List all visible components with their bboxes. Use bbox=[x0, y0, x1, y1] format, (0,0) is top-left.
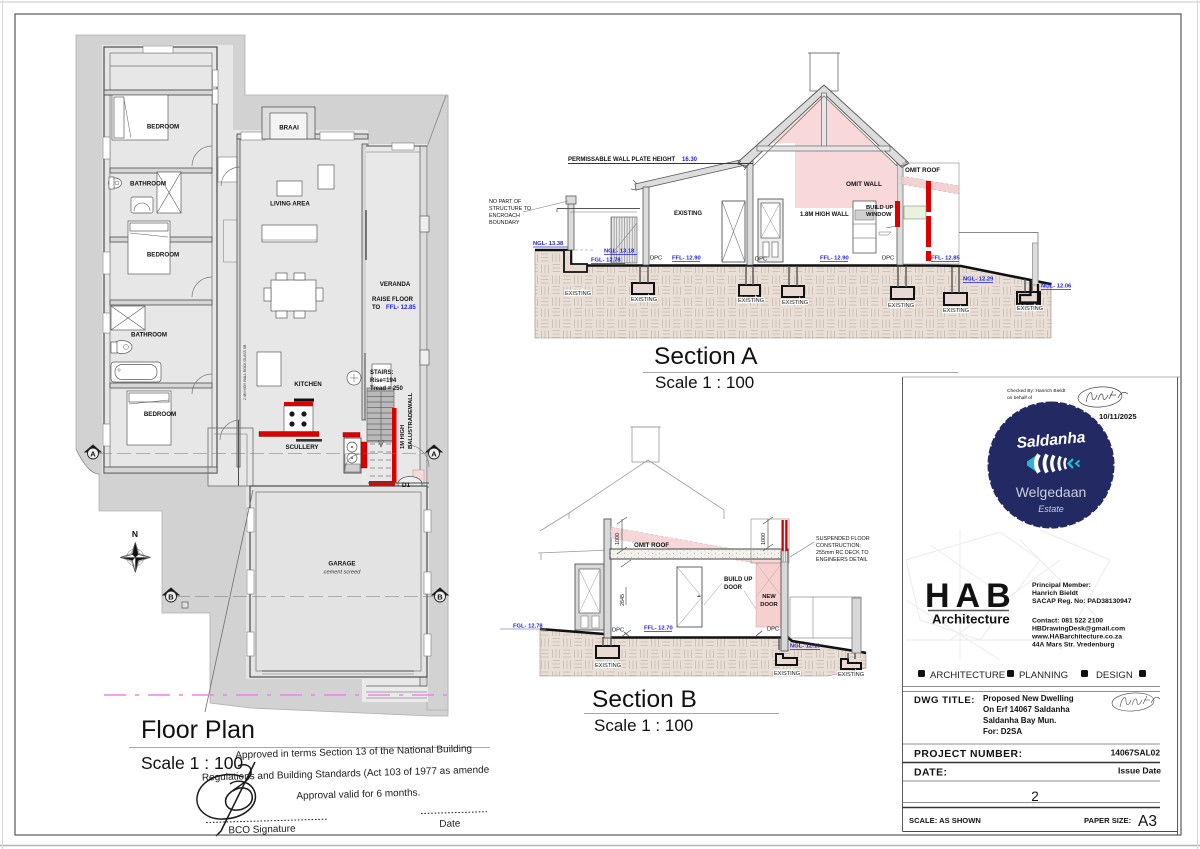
svg-text:BOUNDARY: BOUNDARY bbox=[489, 220, 520, 226]
svg-text:EXISTING: EXISTING bbox=[674, 211, 702, 217]
svg-text:CONSTRUCTION:: CONSTRUCTION: bbox=[816, 543, 861, 549]
svg-text:Checked By: Hanrich Bieldt: Checked By: Hanrich Bieldt bbox=[1007, 388, 1066, 394]
svg-text:2645: 2645 bbox=[620, 594, 626, 606]
svg-text:DOOR: DOOR bbox=[724, 585, 743, 591]
svg-text:STAIRS:: STAIRS: bbox=[370, 370, 394, 376]
svg-text:HAB: HAB bbox=[925, 577, 1017, 615]
svg-text:N: N bbox=[132, 529, 138, 539]
svg-text:VERANDA: VERANDA bbox=[380, 281, 411, 288]
svg-text:DPC: DPC bbox=[755, 257, 767, 263]
svg-text:PERMISSABLE WALL PLATE HEIGHT: PERMISSABLE WALL PLATE HEIGHT bbox=[568, 157, 675, 163]
svg-text:44A Mars Str. Vredenburg: 44A Mars Str. Vredenburg bbox=[1032, 642, 1114, 649]
svg-text:DPC: DPC bbox=[650, 256, 662, 262]
svg-text:EXISTING: EXISTING bbox=[782, 300, 808, 306]
svg-text:Scale 1 : 100: Scale 1 : 100 bbox=[141, 753, 243, 773]
svg-text:DESIGN: DESIGN bbox=[1096, 670, 1133, 681]
svg-text:Date: Date bbox=[439, 818, 461, 830]
svg-text:1.8M HIGH WALL: 1.8M HIGH WALL bbox=[800, 212, 849, 218]
svg-text:PROJECT NUMBER:: PROJECT NUMBER: bbox=[914, 749, 1023, 760]
svg-text:NO PART OF: NO PART OF bbox=[489, 199, 522, 205]
svg-text:NGL- 12.19: NGL- 12.19 bbox=[790, 644, 821, 650]
svg-text:OMIT WALL: OMIT WALL bbox=[846, 181, 882, 188]
svg-text:NGL- 12.06: NGL- 12.06 bbox=[1041, 284, 1072, 290]
svg-text:NGL- 13.18: NGL- 13.18 bbox=[604, 249, 635, 255]
svg-text:DOOR: DOOR bbox=[760, 602, 778, 608]
svg-text:Saldanha Bay Mun.: Saldanha Bay Mun. bbox=[983, 716, 1056, 725]
svg-text:Principal Member:: Principal Member: bbox=[1032, 582, 1091, 589]
svg-text:10/11/2025: 10/11/2025 bbox=[1099, 412, 1137, 421]
svg-text:BUILD UP: BUILD UP bbox=[724, 577, 752, 583]
svg-text:SCALE: AS SHOWN: SCALE: AS SHOWN bbox=[909, 816, 981, 825]
svg-text:FGL- 12.78: FGL- 12.78 bbox=[513, 624, 543, 630]
svg-text:BUILD UP: BUILD UP bbox=[866, 205, 894, 211]
svg-text:A3: A3 bbox=[1138, 813, 1157, 830]
svg-text:www.HABarchitecture.co.za: www.HABarchitecture.co.za bbox=[1031, 634, 1122, 641]
svg-text:EXISTING: EXISTING bbox=[1017, 306, 1043, 312]
svg-text:HBDrawingDesk@gmail.com: HBDrawingDesk@gmail.com bbox=[1032, 626, 1125, 633]
svg-text:FFL- 12.85: FFL- 12.85 bbox=[931, 256, 960, 262]
svg-text:Scale 1 : 100: Scale 1 : 100 bbox=[594, 716, 693, 735]
svg-text:OMIT ROOF: OMIT ROOF bbox=[634, 542, 669, 549]
svg-text:NGL- 13.38: NGL- 13.38 bbox=[533, 241, 564, 247]
svg-text:PLANNING: PLANNING bbox=[1019, 670, 1068, 681]
svg-text:BEDROOM: BEDROOM bbox=[147, 252, 179, 259]
svg-text:TO: TO bbox=[372, 305, 381, 311]
svg-text:16.30: 16.30 bbox=[682, 157, 698, 163]
svg-text:PAPER SIZE:: PAPER SIZE: bbox=[1084, 816, 1131, 825]
svg-text:FFL- 12.90: FFL- 12.90 bbox=[672, 256, 701, 262]
svg-text:Architecture: Architecture bbox=[932, 612, 1010, 627]
svg-text:DATE:: DATE: bbox=[914, 768, 947, 779]
svg-text:Section B: Section B bbox=[592, 686, 697, 713]
svg-text:DWG TITLE:: DWG TITLE: bbox=[914, 695, 975, 706]
svg-text:A: A bbox=[431, 449, 437, 458]
svg-text:Proposed New Dwelling: Proposed New Dwelling bbox=[983, 694, 1074, 703]
svg-text:BRAAI: BRAAI bbox=[279, 125, 299, 132]
svg-text:BEDROOM: BEDROOM bbox=[144, 411, 176, 418]
svg-text:STRUCTURE TO: STRUCTURE TO bbox=[489, 206, 531, 212]
svg-text:FFL- 12.90: FFL- 12.90 bbox=[820, 256, 849, 262]
svg-text:Section A: Section A bbox=[654, 343, 758, 370]
svg-text:2: 2 bbox=[1031, 789, 1039, 804]
svg-text:BATHROOM: BATHROOM bbox=[131, 332, 167, 339]
svg-text:On Erf 14067 Saldanha: On Erf 14067 Saldanha bbox=[983, 705, 1070, 714]
svg-text:1M HIGH: 1M HIGH bbox=[400, 425, 406, 449]
svg-text:Contact: 081 522 2100: Contact: 081 522 2100 bbox=[1032, 618, 1103, 625]
svg-text:Welgedaan: Welgedaan bbox=[1016, 484, 1087, 500]
svg-text:1000: 1000 bbox=[615, 533, 621, 545]
svg-text:Estate: Estate bbox=[1038, 504, 1064, 514]
svg-text:255mm RC DECK TO: 255mm RC DECK TO bbox=[816, 550, 869, 556]
svg-text:DPC: DPC bbox=[767, 627, 779, 633]
svg-text:Issue Date: Issue Date bbox=[1118, 766, 1161, 776]
svg-text:GARAGE: GARAGE bbox=[328, 561, 355, 568]
svg-text:ENCROACH: ENCROACH bbox=[489, 213, 520, 219]
svg-text:NGL- 12.29: NGL- 12.29 bbox=[963, 277, 994, 283]
svg-text:EXISTING: EXISTING bbox=[774, 671, 800, 677]
svg-text:EXISTING: EXISTING bbox=[888, 303, 914, 309]
svg-text:EXISTING: EXISTING bbox=[595, 663, 621, 669]
svg-text:SCULLERY: SCULLERY bbox=[285, 444, 319, 451]
svg-text:FGL- 12.78: FGL- 12.78 bbox=[591, 258, 621, 264]
svg-text:DPC: DPC bbox=[882, 256, 894, 262]
svg-text:B: B bbox=[437, 592, 443, 601]
svg-text:A: A bbox=[90, 449, 96, 458]
svg-text:RAISE FLOOR: RAISE FLOOR bbox=[372, 297, 414, 303]
svg-text:NEW: NEW bbox=[762, 594, 776, 600]
svg-text:EXISTING: EXISTING bbox=[631, 297, 657, 303]
svg-text:BEDROOM: BEDROOM bbox=[147, 124, 179, 131]
svg-text:ENGINEERS DETAIL: ENGINEERS DETAIL bbox=[816, 557, 868, 563]
svg-text:LIVING AREA: LIVING AREA bbox=[270, 201, 310, 208]
svg-text:2.4M HIGH WALL ROCK GLASS SB: 2.4M HIGH WALL ROCK GLASS SB bbox=[243, 344, 247, 400]
svg-text:Rise=194: Rise=194 bbox=[370, 378, 397, 384]
svg-text:EXISTING: EXISTING bbox=[565, 291, 591, 297]
svg-text:14067SAL02: 14067SAL02 bbox=[1111, 748, 1161, 758]
svg-text:D1: D1 bbox=[402, 482, 411, 489]
svg-text:FFL- 12.85: FFL- 12.85 bbox=[386, 305, 416, 311]
svg-text:Hanrich Bieldt: Hanrich Bieldt bbox=[1032, 590, 1079, 597]
svg-text:OMIT ROOF: OMIT ROOF bbox=[905, 167, 940, 174]
svg-text:Floor Plan: Floor Plan bbox=[141, 716, 255, 744]
svg-text:EXISTING: EXISTING bbox=[943, 308, 969, 314]
svg-text:1000: 1000 bbox=[761, 533, 767, 545]
svg-text:WINDOW: WINDOW bbox=[866, 212, 892, 218]
svg-text:For: D2SA: For: D2SA bbox=[983, 727, 1022, 736]
svg-text:cement screed: cement screed bbox=[324, 570, 362, 576]
svg-text:DPC: DPC bbox=[612, 628, 624, 634]
svg-text:ARCHITECTURE: ARCHITECTURE bbox=[930, 670, 1005, 681]
svg-text:B: B bbox=[168, 592, 174, 601]
svg-text:SUSPENDED FLOOR: SUSPENDED FLOOR bbox=[816, 536, 870, 542]
svg-text:Scale 1 : 100: Scale 1 : 100 bbox=[655, 373, 754, 392]
svg-text:FFL- 12.70: FFL- 12.70 bbox=[644, 626, 673, 632]
svg-text:KITCHEN: KITCHEN bbox=[294, 381, 322, 388]
svg-text:on behalf of: on behalf of bbox=[1007, 395, 1033, 401]
svg-text:BALUSTRADEWALL: BALUSTRADEWALL bbox=[408, 392, 414, 449]
svg-text:EXISTING: EXISTING bbox=[738, 298, 764, 304]
svg-text:Tread = 250: Tread = 250 bbox=[370, 386, 404, 392]
svg-text:BATHROOM: BATHROOM bbox=[130, 181, 166, 188]
svg-text:EXISTING: EXISTING bbox=[838, 672, 864, 678]
svg-text:SACAP Reg. No: PAD38130947: SACAP Reg. No: PAD38130947 bbox=[1032, 598, 1132, 605]
